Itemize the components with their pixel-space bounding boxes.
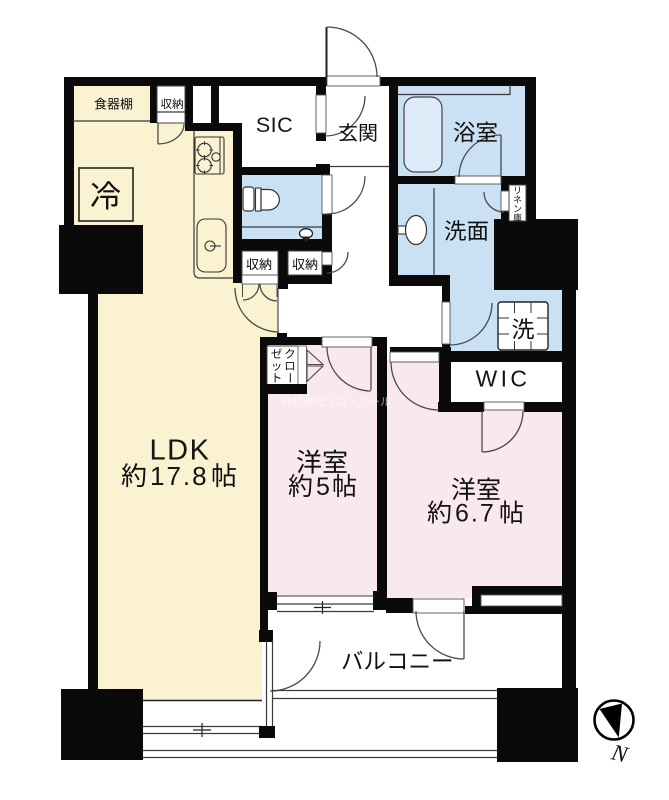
svg-text:WIC: WIC xyxy=(476,366,531,392)
svg-text:17.8: 17.8 xyxy=(150,461,209,491)
svg-text:5: 5 xyxy=(316,473,330,501)
svg-text:SIC: SIC xyxy=(256,113,293,137)
svg-text:6.7: 6.7 xyxy=(455,500,496,528)
